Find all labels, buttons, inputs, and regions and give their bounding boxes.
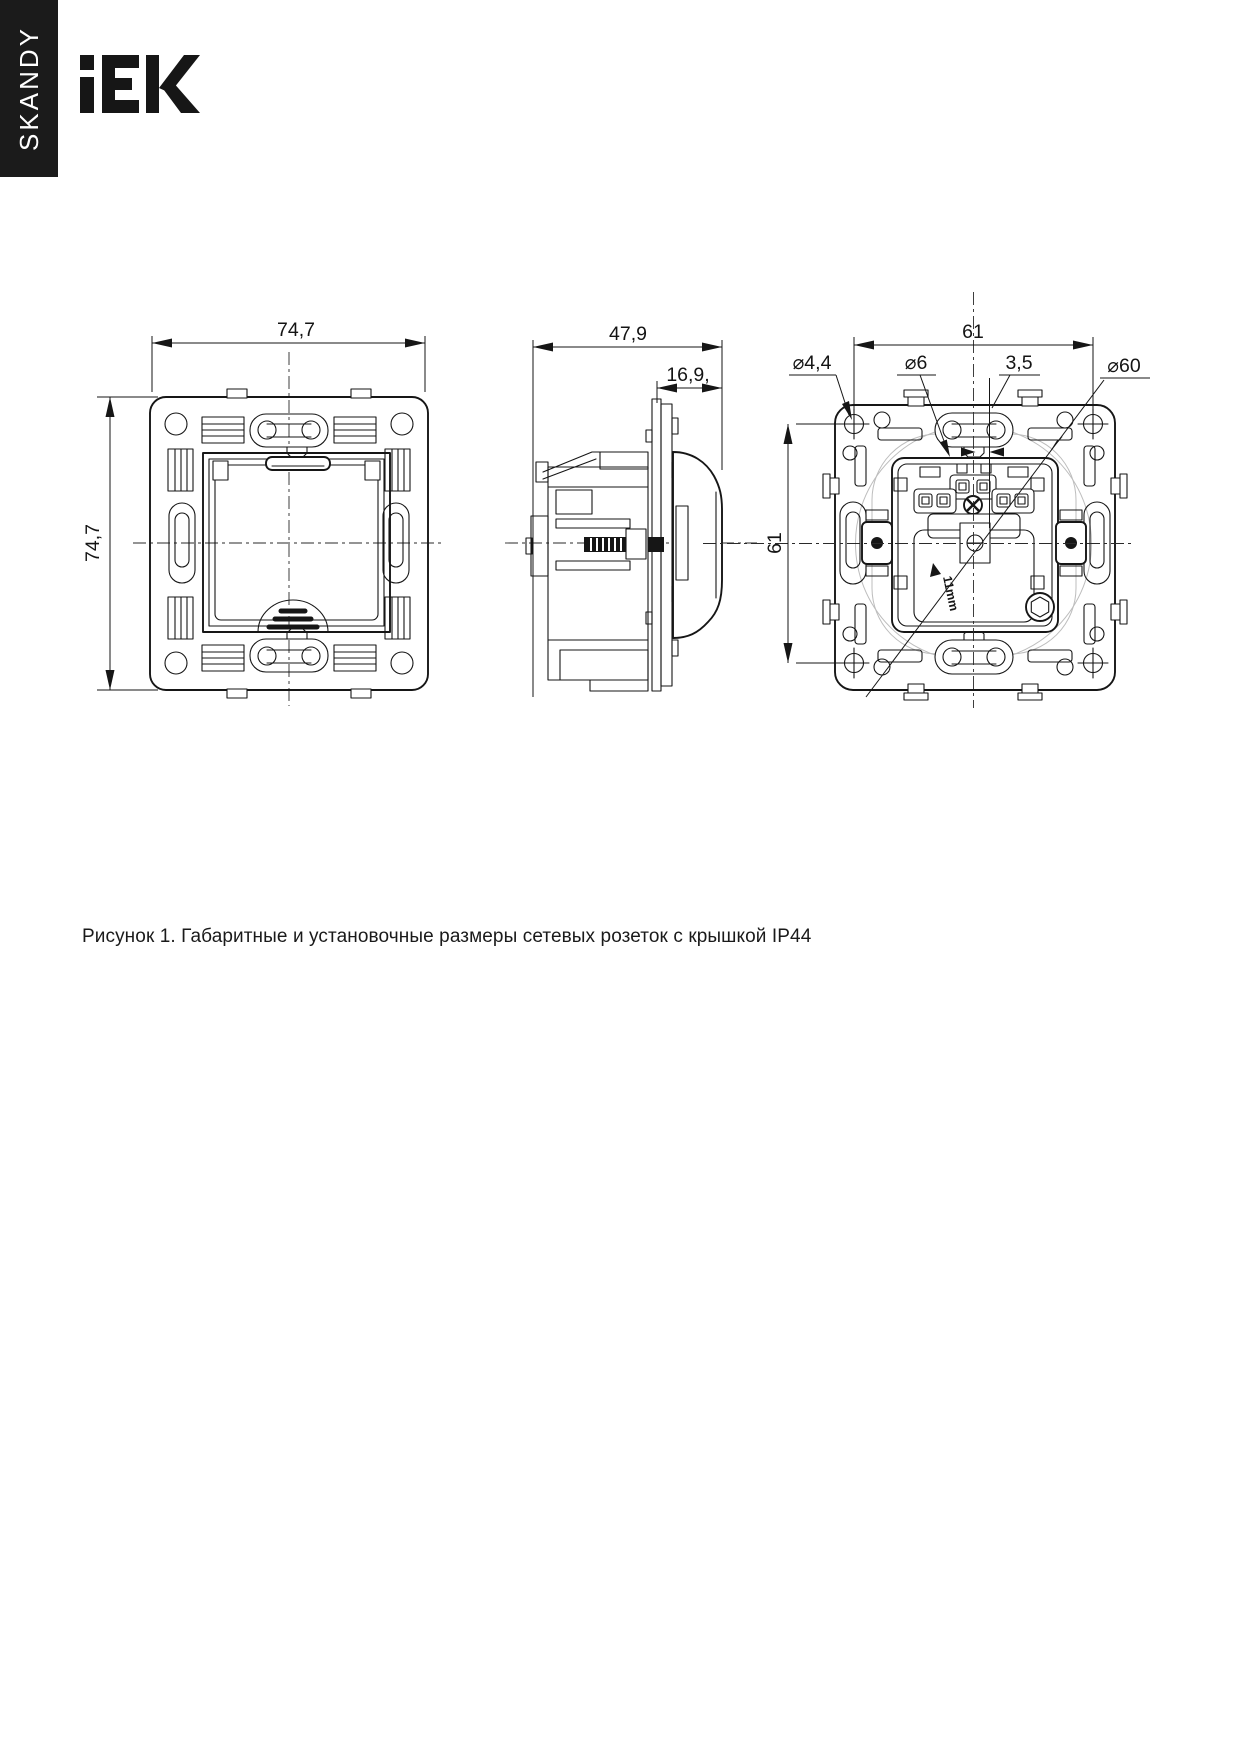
dim-back-width: 61 xyxy=(962,321,984,343)
figure-caption: Рисунок 1. Габаритные и установочные раз… xyxy=(82,926,982,948)
dim-front-width: 74,7 xyxy=(277,319,315,341)
dim-side-depth: 47,9 xyxy=(609,323,647,345)
document-page: SKANDY IEK xyxy=(0,0,1239,1746)
front-view: 74,7 74,7 xyxy=(82,319,445,706)
dim-back-height: 61 xyxy=(764,532,786,554)
figure-drawings: 74,7 74,7 xyxy=(0,0,1239,1746)
back-view: L N xyxy=(703,292,1150,708)
dim-screw-hole: ⌀6 xyxy=(905,352,928,374)
dim-front-height: 74,7 xyxy=(82,524,104,562)
side-view: 47,9 16,9, xyxy=(505,323,757,697)
dim-side-protrusion: 16,9, xyxy=(666,364,709,386)
dim-mount-hole: ⌀4,4 xyxy=(793,352,832,374)
dim-offset: 3,5 xyxy=(1005,352,1032,374)
dim-install-circle: ⌀60 xyxy=(1107,355,1141,377)
